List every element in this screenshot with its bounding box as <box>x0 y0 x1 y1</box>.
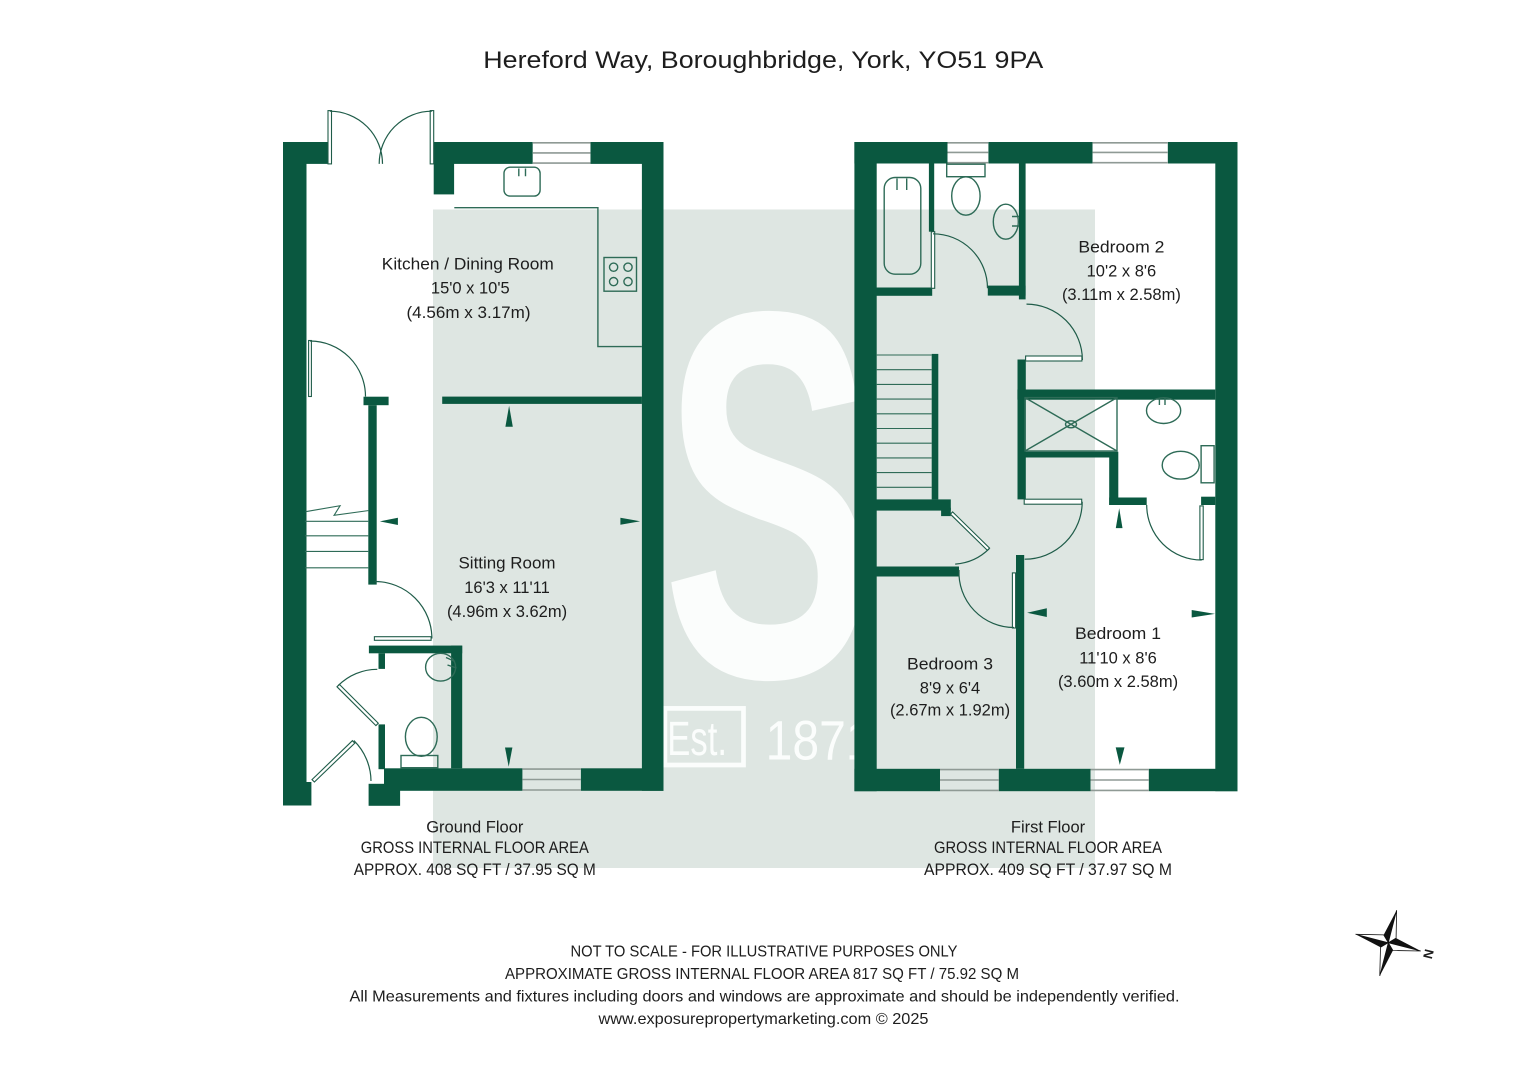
svg-text:Bedroom 2: Bedroom 2 <box>1078 239 1164 257</box>
svg-text:S: S <box>662 203 875 787</box>
svg-text:Bedroom 3: Bedroom 3 <box>907 656 993 674</box>
svg-text:(3.11m x 2.58m): (3.11m x 2.58m) <box>1062 286 1181 304</box>
svg-text:APPROXIMATE GROSS INTERNAL FLO: APPROXIMATE GROSS INTERNAL FLOOR AREA 81… <box>505 966 1019 983</box>
svg-text:15'0 x 10'5: 15'0 x 10'5 <box>431 279 510 297</box>
svg-text:NOT TO SCALE - FOR ILLUSTRATIV: NOT TO SCALE - FOR ILLUSTRATIVE PURPOSES… <box>571 944 958 961</box>
svg-text:16'3 x 11'11: 16'3 x 11'11 <box>464 579 550 597</box>
svg-text:(4.56m x 3.17m): (4.56m x 3.17m) <box>407 304 531 322</box>
svg-text:10'2 x 8'6: 10'2 x 8'6 <box>1087 263 1157 281</box>
svg-text:Bedroom 1: Bedroom 1 <box>1075 625 1161 643</box>
svg-text:(2.67m x 1.92m): (2.67m x 1.92m) <box>890 702 1010 720</box>
svg-text:8'9 x 6'4: 8'9 x 6'4 <box>920 680 980 698</box>
svg-text:Est.: Est. <box>667 713 727 766</box>
svg-text:Kitchen / Dining Room: Kitchen / Dining Room <box>382 256 554 274</box>
svg-text:(4.96m x 3.62m): (4.96m x 3.62m) <box>447 603 567 621</box>
svg-text:Hereford Way, Boroughbridge, Y: Hereford Way, Boroughbridge, York, YO51 … <box>483 47 1044 74</box>
svg-text:11'10 x 8'6: 11'10 x 8'6 <box>1079 650 1157 668</box>
svg-text:GROSS INTERNAL FLOOR AREA: GROSS INTERNAL FLOOR AREA <box>361 839 589 857</box>
svg-text:Ground Floor: Ground Floor <box>426 818 524 836</box>
svg-text:(3.60m x 2.58m): (3.60m x 2.58m) <box>1058 673 1178 691</box>
svg-text:APPROX. 409 SQ FT / 37.97 SQ M: APPROX. 409 SQ FT / 37.97 SQ M <box>924 861 1172 879</box>
svg-text:www.exposurepropertymarketing.: www.exposurepropertymarketing.com © 2025 <box>597 1011 928 1028</box>
svg-text:Sitting Room: Sitting Room <box>459 555 556 573</box>
svg-text:APPROX. 408 SQ FT / 37.95 SQ M: APPROX. 408 SQ FT / 37.95 SQ M <box>354 861 596 879</box>
svg-text:GROSS INTERNAL FLOOR AREA: GROSS INTERNAL FLOOR AREA <box>934 839 1162 857</box>
svg-text:All Measurements and fixtures: All Measurements and fixtures including … <box>350 989 1180 1006</box>
svg-text:First Floor: First Floor <box>1011 818 1086 836</box>
